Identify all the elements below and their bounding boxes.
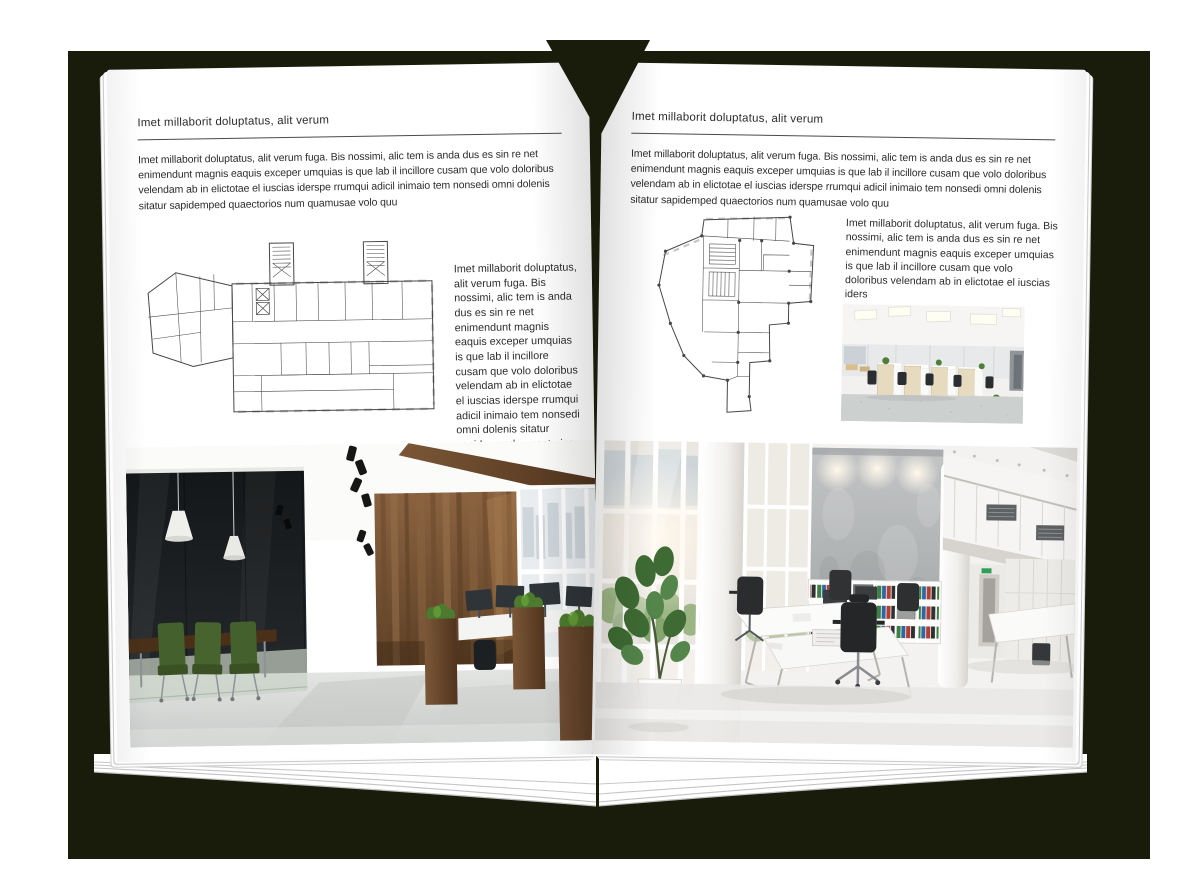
- photo-dark-office: [126, 440, 600, 747]
- right-header-rule: [631, 133, 1055, 141]
- left-header-rule: [138, 133, 562, 141]
- exit-sign: [981, 568, 991, 573]
- left-page: Imet millaborit doluptatus, alit verum I…: [107, 62, 600, 761]
- photo-atrium-office: [595, 440, 1078, 747]
- page-stack-bottom-right: [599, 754, 1087, 810]
- magazine-mockup-stage: Imet millaborit doluptatus, alit verum I…: [0, 0, 1200, 891]
- left-page-header: Imet millaborit doluptatus, alit verum: [137, 114, 329, 129]
- photo-small-office: [841, 304, 1025, 424]
- right-page: Imet millaborit doluptatus, alit verum I…: [592, 62, 1087, 762]
- right-side-text: Imet millaborit doluptatus, alit verum f…: [845, 216, 1058, 305]
- floorplan-right-drawing: [641, 209, 828, 418]
- left-side-text: Imet millaborit doluptatus, alit verum f…: [454, 260, 581, 467]
- floorplan-left-drawing: [139, 223, 442, 420]
- right-intro-paragraph: Imet millaborit doluptatus, alit verum f…: [630, 147, 1067, 215]
- left-intro-paragraph: Imet millaborit doluptatus, alit verum f…: [138, 146, 575, 214]
- right-page-header: Imet millaborit doluptatus, alit verum: [632, 111, 824, 126]
- page-stack-bottom-left: [94, 754, 596, 810]
